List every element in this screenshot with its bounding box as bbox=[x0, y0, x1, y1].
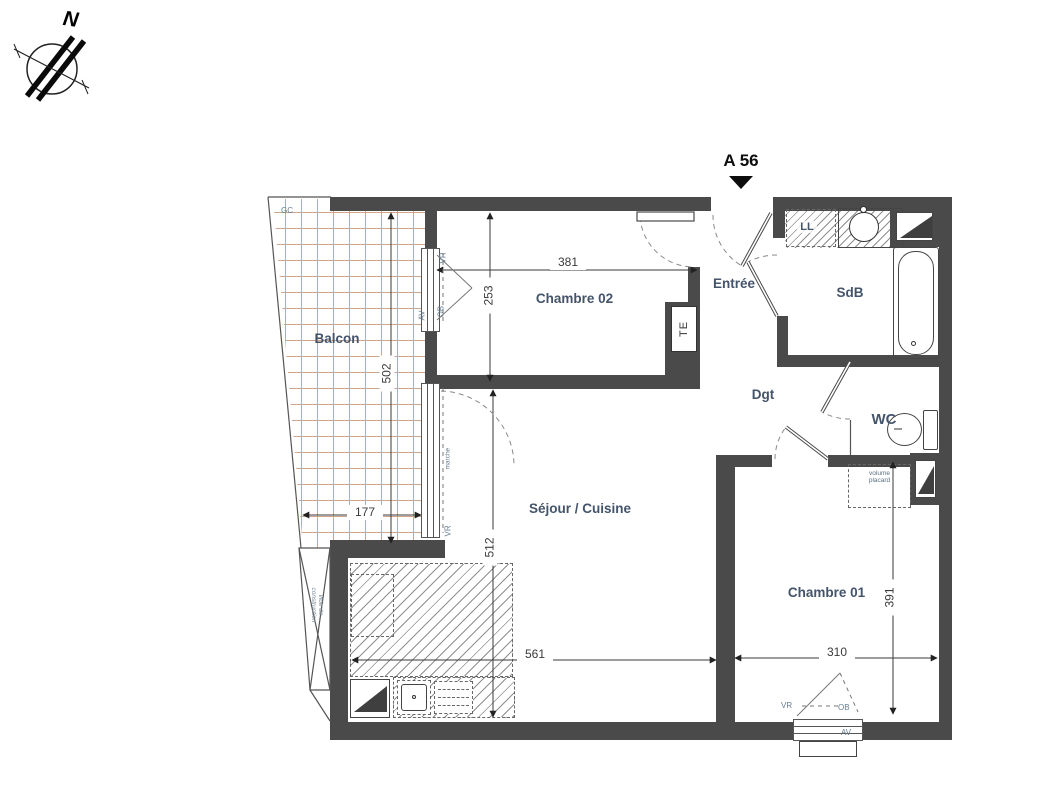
unit-number: A 56 bbox=[710, 151, 772, 171]
tag-ob-chambre02: OB bbox=[437, 302, 446, 318]
door-leaves bbox=[637, 212, 850, 459]
construction-void-line2: construction bbox=[310, 574, 317, 636]
tag-marche: marche bbox=[445, 428, 452, 470]
dim-chambre02-depth: 253 bbox=[482, 278, 497, 314]
tag-vr-chambre01: VR bbox=[781, 701, 792, 710]
room-label-balcon: Balcon bbox=[299, 331, 375, 346]
dim-balcon-width: 177 bbox=[347, 505, 383, 520]
plan-linework bbox=[0, 0, 1061, 800]
tag-ob-chambre01: OB bbox=[838, 703, 850, 712]
dim-sejour-depth: 512 bbox=[483, 530, 498, 566]
room-label-chambre02: Chambre 02 bbox=[512, 291, 637, 306]
room-label-sejour: Séjour / Cuisine bbox=[505, 501, 655, 516]
door-swing-arcs bbox=[441, 215, 850, 464]
room-label-entree: Entrée bbox=[692, 276, 776, 291]
chambre02-door-leaf bbox=[637, 212, 694, 221]
dim-balcon-depth: 502 bbox=[380, 356, 395, 392]
construction-void-label: vide de construction bbox=[306, 574, 324, 636]
dim-sejour-width: 561 bbox=[517, 647, 553, 662]
tag-av-chambre01: AV bbox=[841, 728, 851, 737]
closet-volume-line1: volume bbox=[849, 470, 910, 477]
thin-lines bbox=[268, 197, 902, 721]
room-label-sdb: SdB bbox=[824, 285, 876, 300]
room-label-wc: WC bbox=[858, 411, 910, 428]
closet-volume-label: volume placard bbox=[849, 470, 910, 484]
electrical-panel: TE bbox=[671, 306, 697, 352]
dim-chambre01-width: 310 bbox=[819, 645, 855, 660]
entry-marker-icon bbox=[729, 176, 753, 189]
tag-vr-sejour: VR bbox=[444, 521, 453, 537]
room-label-chambre01: Chambre 01 bbox=[764, 585, 889, 600]
closet-volume-line2: placard bbox=[849, 477, 910, 484]
dim-chambre02-width: 381 bbox=[550, 255, 586, 270]
compass-icon bbox=[14, 37, 89, 100]
washing-machine-label: LL bbox=[797, 221, 817, 233]
tag-gc: GC bbox=[281, 206, 293, 215]
room-label-dgt: Dgt bbox=[735, 387, 791, 402]
construction-void-line1: vide de bbox=[317, 574, 324, 636]
tag-av-chambre02: AV bbox=[418, 305, 427, 321]
electrical-panel-label: TE bbox=[678, 321, 690, 337]
floor-plan-sheet: TE A 56 N Balcon Chambre 02 Entrée SdB D… bbox=[0, 0, 1061, 800]
window-symbols bbox=[437, 253, 858, 716]
dim-chambre01-depth: 391 bbox=[883, 580, 898, 616]
tag-vr-chambre02: VR bbox=[439, 248, 448, 264]
